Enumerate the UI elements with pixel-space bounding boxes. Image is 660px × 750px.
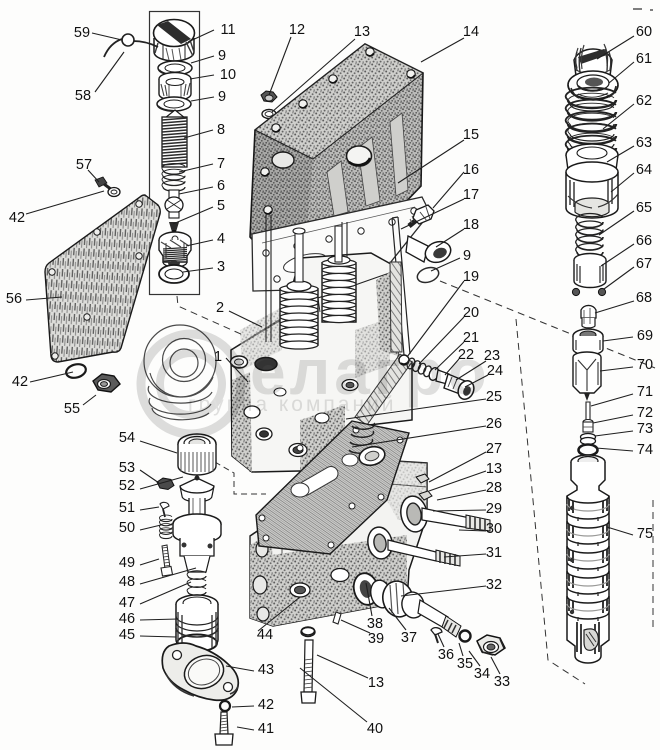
svg-text:9: 9 [218, 48, 226, 64]
svg-text:11: 11 [220, 22, 235, 38]
svg-text:25: 25 [486, 389, 502, 405]
svg-text:40: 40 [367, 721, 383, 737]
svg-text:группа компаний: группа компаний [188, 393, 397, 416]
svg-text:9: 9 [463, 248, 471, 264]
svg-text:5: 5 [217, 198, 225, 214]
svg-text:39: 39 [368, 631, 384, 647]
svg-text:15: 15 [463, 127, 479, 143]
svg-text:17: 17 [463, 187, 479, 203]
svg-text:43: 43 [258, 662, 274, 678]
svg-text:53: 53 [119, 460, 135, 476]
svg-text:13: 13 [486, 461, 502, 477]
svg-text:62: 62 [636, 93, 652, 109]
svg-text:27: 27 [486, 441, 502, 457]
svg-text:72: 72 [637, 405, 653, 421]
svg-text:74: 74 [637, 442, 653, 458]
svg-text:37: 37 [401, 630, 417, 646]
svg-text:8: 8 [217, 122, 225, 138]
svg-text:54: 54 [119, 430, 135, 446]
svg-text:58: 58 [75, 88, 91, 104]
svg-text:30: 30 [486, 521, 502, 537]
svg-text:22: 22 [458, 347, 474, 363]
svg-text:61: 61 [636, 51, 652, 67]
svg-text:50: 50 [119, 520, 135, 536]
svg-text:42: 42 [9, 210, 25, 226]
svg-text:67: 67 [636, 256, 652, 272]
svg-text:71: 71 [637, 384, 653, 400]
svg-text:49: 49 [119, 555, 135, 571]
svg-text:64: 64 [636, 162, 652, 178]
svg-text:65: 65 [636, 200, 652, 216]
svg-text:24: 24 [487, 363, 503, 379]
svg-text:42: 42 [258, 697, 274, 713]
svg-text:28: 28 [486, 480, 502, 496]
svg-text:36: 36 [438, 647, 454, 663]
svg-text:4: 4 [217, 231, 225, 247]
svg-text:23: 23 [484, 348, 500, 364]
svg-text:56: 56 [6, 291, 22, 307]
svg-text:48: 48 [119, 574, 135, 590]
svg-text:12: 12 [289, 22, 305, 38]
svg-text:57: 57 [76, 157, 92, 173]
svg-text:29: 29 [486, 501, 502, 517]
svg-text:69: 69 [637, 328, 653, 344]
svg-text:1: 1 [214, 349, 222, 365]
svg-text:14: 14 [463, 24, 479, 40]
svg-text:19: 19 [463, 269, 479, 285]
svg-text:7: 7 [217, 156, 225, 172]
svg-text:16: 16 [463, 162, 479, 178]
svg-text:73: 73 [637, 421, 653, 437]
svg-text:60: 60 [636, 24, 652, 40]
svg-text:59: 59 [74, 25, 90, 41]
svg-text:32: 32 [486, 577, 502, 593]
svg-text:13: 13 [354, 24, 370, 40]
svg-text:35: 35 [457, 656, 473, 672]
svg-text:52: 52 [119, 478, 135, 494]
svg-text:51: 51 [119, 500, 135, 516]
svg-text:13: 13 [368, 675, 384, 691]
svg-text:47: 47 [119, 595, 135, 611]
svg-text:38: 38 [367, 616, 383, 632]
svg-text:70: 70 [637, 357, 653, 373]
svg-text:2: 2 [216, 300, 224, 316]
svg-text:20: 20 [463, 305, 479, 321]
svg-text:55: 55 [64, 401, 80, 417]
svg-text:75: 75 [637, 526, 653, 542]
svg-text:21: 21 [463, 330, 479, 346]
svg-text:46: 46 [119, 611, 135, 627]
svg-text:66: 66 [636, 233, 652, 249]
svg-text:10: 10 [220, 67, 236, 83]
svg-text:41: 41 [258, 721, 274, 737]
svg-text:44: 44 [257, 627, 273, 643]
svg-text:45: 45 [119, 627, 135, 643]
svg-text:34: 34 [474, 666, 490, 682]
svg-text:6: 6 [217, 178, 225, 194]
svg-text:42: 42 [12, 374, 28, 390]
svg-text:33: 33 [494, 674, 510, 690]
svg-text:26: 26 [486, 416, 502, 432]
svg-text:31: 31 [486, 545, 502, 561]
svg-text:18: 18 [463, 217, 479, 233]
svg-text:9: 9 [218, 89, 226, 105]
svg-text:3: 3 [217, 259, 225, 275]
svg-text:63: 63 [636, 135, 652, 151]
svg-text:68: 68 [636, 290, 652, 306]
